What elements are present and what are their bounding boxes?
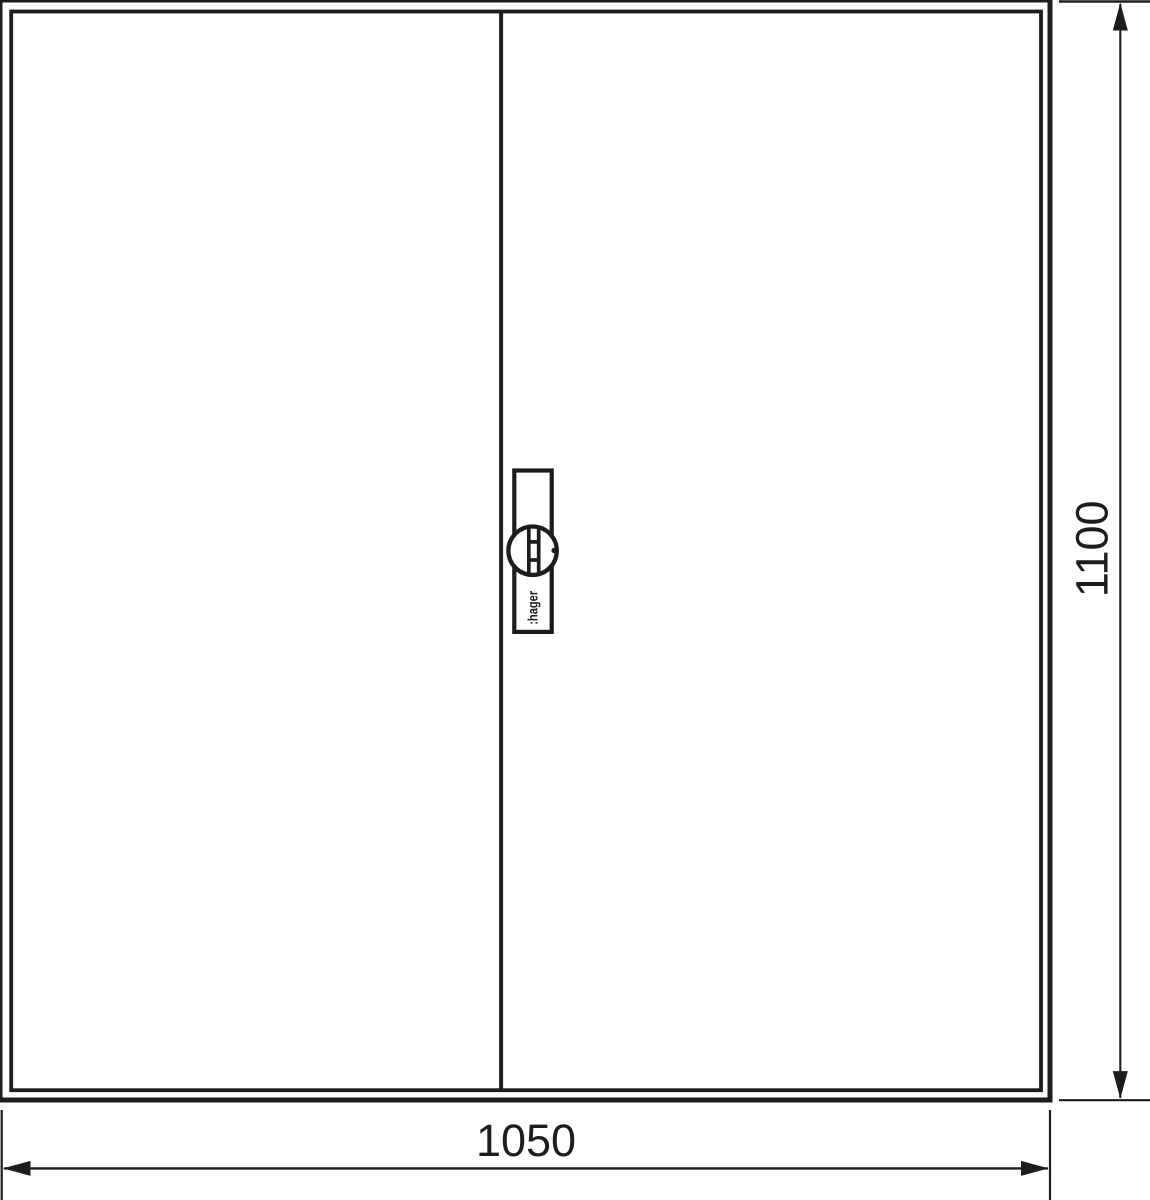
svg-text::hager: :hager xyxy=(526,590,542,624)
svg-text:1050: 1050 xyxy=(476,1115,576,1166)
svg-text:1100: 1100 xyxy=(1066,500,1117,597)
